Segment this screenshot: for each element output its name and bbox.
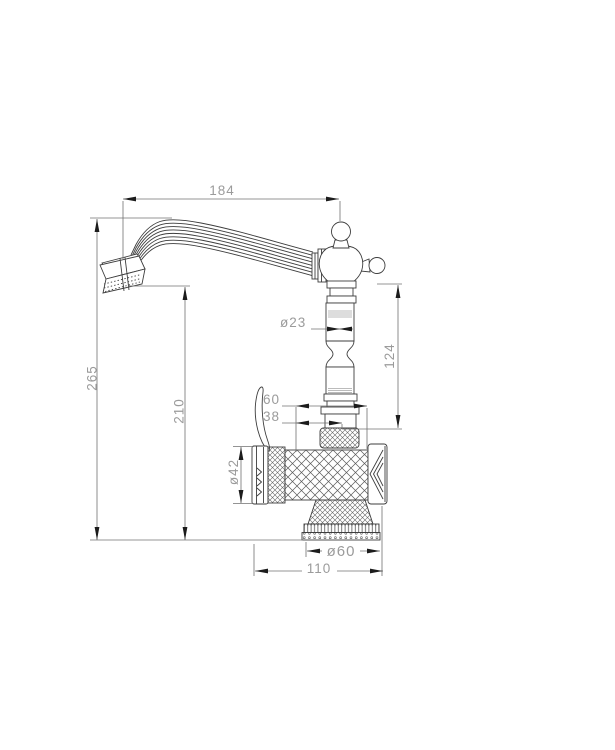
base-bead-ring [304, 524, 379, 533]
base-gadroon-ring [302, 533, 380, 541]
base [302, 500, 380, 540]
body-knurled-cylinder [285, 450, 368, 500]
spout-head [319, 222, 385, 282]
valve-body [252, 444, 387, 504]
spout-fluted-tube [131, 220, 313, 279]
dim-body-diameter: ø42 [226, 447, 254, 504]
dim-label-60: 60 [263, 392, 280, 407]
dim-label-38: 38 [263, 409, 280, 424]
column-vase-section [326, 341, 354, 367]
body-left-collar [268, 447, 285, 503]
dim-label-o60: ø60 [327, 543, 356, 560]
dim-label-184: 184 [209, 183, 235, 198]
dim-label-110: 110 [307, 561, 332, 576]
faucet-dimension-drawing: 184 265 210 ø23 124 [0, 0, 615, 750]
spout-outlet-aerator [100, 254, 145, 293]
knurled-locknut [320, 428, 359, 448]
dim-body-length: 110 [254, 544, 383, 576]
dim-label-210: 210 [172, 398, 187, 424]
base-knurled-cone [308, 500, 373, 524]
dim-label-o23: ø23 [280, 315, 306, 330]
body-left-cap [252, 446, 268, 504]
dim-label-124: 124 [382, 343, 397, 369]
dim-outlet-height: 210 [128, 286, 190, 540]
side-knob-ball [369, 258, 385, 274]
dim-label-265: 265 [85, 365, 100, 391]
finial-ball [332, 222, 351, 241]
dim-label-o42: ø42 [226, 459, 241, 485]
technical-drawing-page: 184 265 210 ø23 124 [0, 0, 615, 750]
